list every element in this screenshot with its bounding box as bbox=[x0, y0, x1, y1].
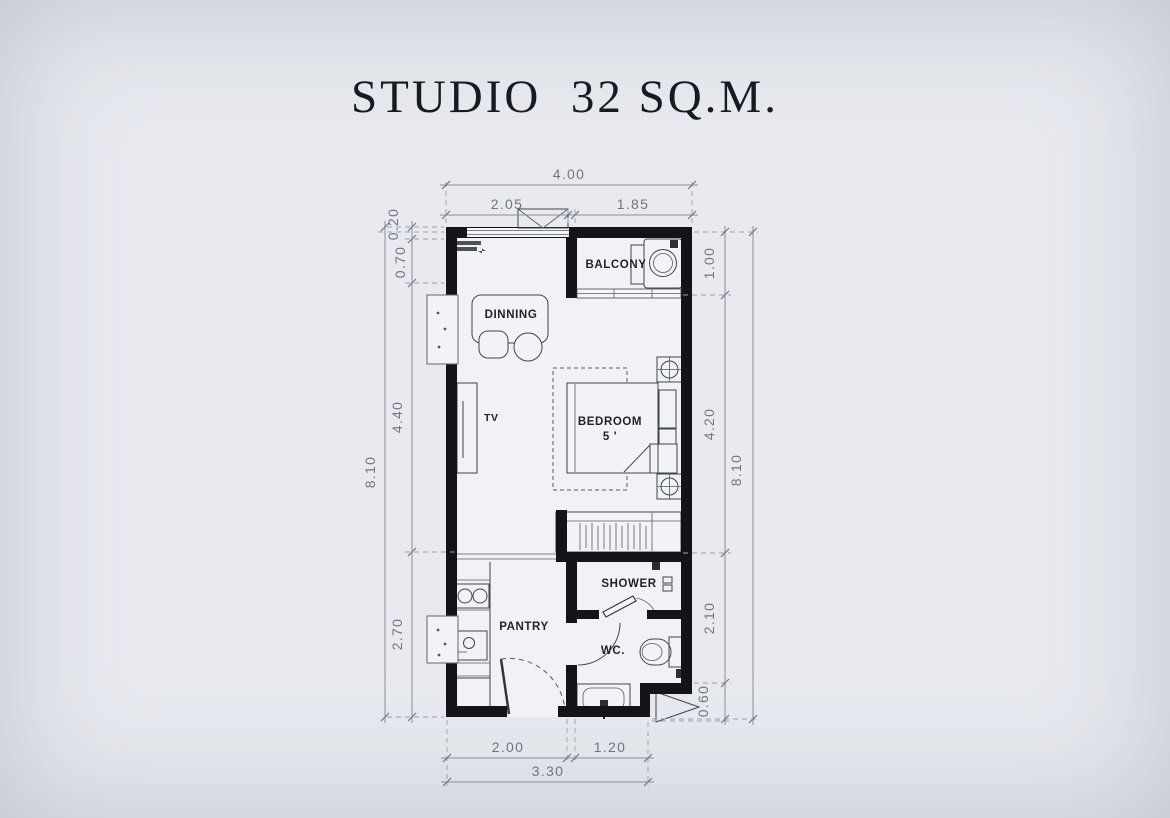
dim-bottom-left: 2.00 bbox=[492, 739, 524, 755]
shower-label: SHOWER bbox=[601, 578, 656, 590]
drain-icon bbox=[652, 562, 660, 570]
wall-under-wardrobe bbox=[556, 552, 681, 562]
dim-left-seg2: 0.70 bbox=[392, 246, 408, 278]
dining-window bbox=[467, 228, 569, 237]
dim-left-seg3: 4.40 bbox=[389, 401, 405, 433]
bedroom-size-label: 5 ' bbox=[603, 431, 617, 443]
wall-pantry-bath-upper bbox=[566, 562, 577, 623]
tv-label: TV bbox=[484, 412, 499, 424]
wardrobe bbox=[556, 512, 681, 552]
wall-bottom-mid bbox=[558, 706, 650, 717]
dim-right-seg1: 1.00 bbox=[701, 247, 717, 279]
dim-top-right: 1.85 bbox=[617, 196, 649, 212]
wall-shower-wc-left bbox=[577, 610, 599, 619]
dining-label: DINNING bbox=[485, 309, 538, 321]
dim-left-seg4: 2.70 bbox=[389, 618, 405, 650]
floor-plan: BALCONY DINNING TV BEDROOM 5 ' SHOWER PA… bbox=[427, 209, 730, 722]
floor-plan-canvas: STUDIO 32 SQ.M. bbox=[0, 0, 1170, 818]
dim-right-seg4: 0.60 bbox=[695, 685, 711, 717]
page-title: STUDIO 32 SQ.M. bbox=[351, 71, 779, 123]
dim-left-overall: 8.10 bbox=[362, 456, 378, 488]
entrance-arrow-icon bbox=[656, 692, 699, 722]
balcony-drain-icon bbox=[670, 240, 678, 248]
wc-label: WC. bbox=[601, 645, 625, 657]
dim-bottom-overall: 3.30 bbox=[532, 763, 564, 779]
dim-top-overall: 4.00 bbox=[553, 166, 585, 182]
dim-bottom-right: 1.20 bbox=[594, 739, 626, 755]
wall-balcony-divider bbox=[566, 227, 577, 298]
wall-shower-wc-right bbox=[647, 610, 681, 619]
wall-right bbox=[681, 227, 692, 694]
balcony-label: BALCONY bbox=[585, 259, 646, 271]
dim-right-seg2: 4.20 bbox=[701, 408, 717, 440]
wall-notch bbox=[640, 683, 650, 717]
riser-box-lower bbox=[427, 616, 458, 663]
pantry-label: PANTRY bbox=[499, 621, 549, 633]
dim-right-seg3: 2.10 bbox=[701, 602, 717, 634]
riser-box-upper bbox=[427, 295, 458, 364]
dim-top-left: 2.05 bbox=[491, 196, 523, 212]
ac-condenser-icon bbox=[518, 209, 568, 228]
wall-bottom-left bbox=[446, 706, 507, 717]
dining-chair-2 bbox=[514, 333, 542, 361]
wall-pantry-bath-lower bbox=[566, 665, 577, 706]
balcony-sliding-door bbox=[577, 289, 681, 298]
wall-wardrobe-stub bbox=[556, 510, 567, 554]
bedroom-label: BEDROOM bbox=[578, 416, 642, 428]
dim-right-overall: 8.10 bbox=[728, 454, 744, 486]
floor-plan-page: STUDIO 32 SQ.M. bbox=[0, 0, 1170, 818]
dim-left-seg1: 0.20 bbox=[385, 208, 401, 240]
dining-chair-1 bbox=[479, 331, 508, 358]
